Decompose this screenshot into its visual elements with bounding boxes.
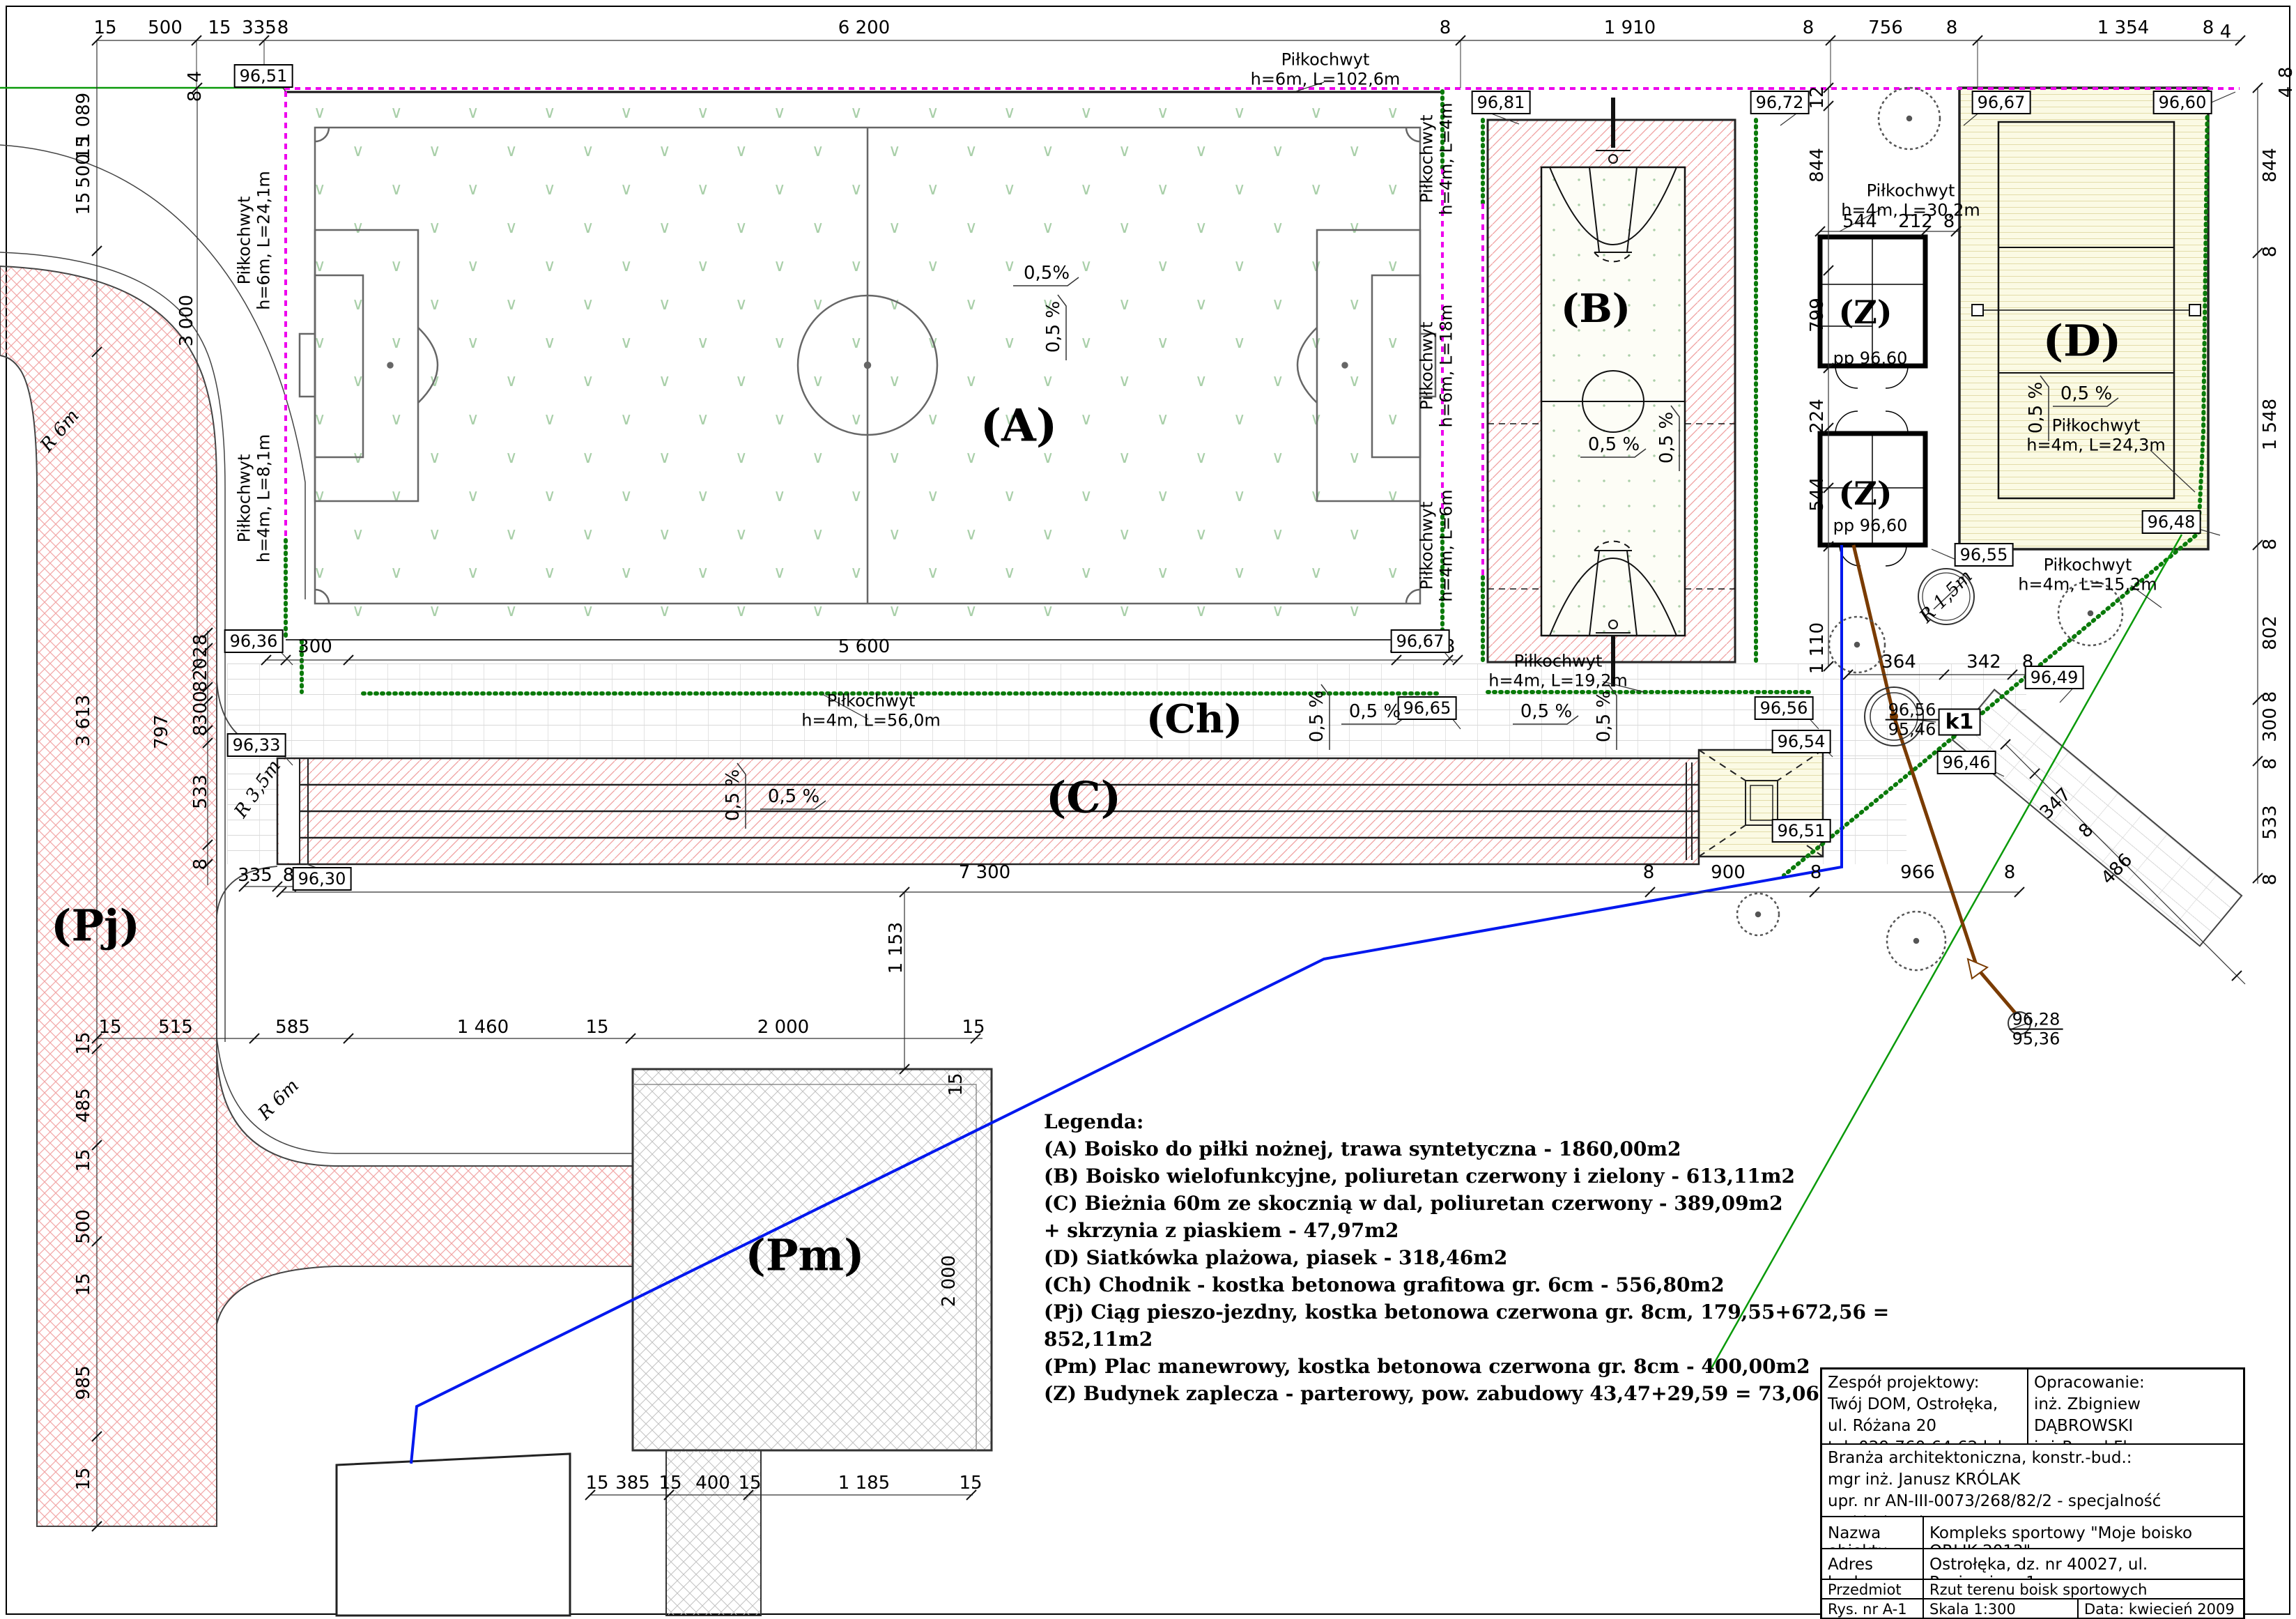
dimension-label: 1 153 [886,922,907,974]
dimension-label: 8 [2260,691,2281,703]
area-label: (D) [2043,316,2121,367]
branch-info: Branża architektoniczna, konstr.-bud.: m… [1822,1445,2243,1516]
dimension-label: 15 [959,1473,982,1494]
dimension-label: 342 [1966,652,2001,673]
dimension-label: 15 [658,1473,681,1494]
dimension-label: 8 [1803,17,1815,38]
dimension-label: 797 [151,714,172,749]
subject-label: Przedmiot rys.: [1822,1580,1924,1598]
fence-label: Piłkochwyt h=6m, L=102,6m [1251,50,1401,89]
legend-item: (B) Boisko wielofunkcyjne, poliuretan cz… [1044,1163,1915,1190]
legend-heading: Legenda: [1044,1108,1915,1135]
dimension-label: 15 [73,1031,94,1054]
elevation-marker: 96,67 [1972,91,2031,114]
legend-items: (A) Boisko do piłki nożnej, trawa syntet… [1044,1135,1915,1407]
elevation-marker: 96,56 [1755,696,1814,720]
legend-item: (D) Siatkówka plażowa, piasek - 318,46m2 [1044,1244,1915,1271]
elevation-marker: 96,48 [2142,510,2201,534]
dimension-label: 533 [2260,805,2281,840]
dimension-label: 2 000 [939,1255,960,1307]
dimension-label: 756 [1868,17,1903,38]
dimension-label: 8 [2260,758,2281,770]
dimension-label: 385 [615,1473,650,1494]
dimension-label: 15 [208,17,231,38]
elevation-marker: 96,54 [1772,730,1831,753]
slope-label: 0,5% [1024,263,1070,284]
dimension-label: 799 [1807,298,1828,332]
dimension-label: 12 [1807,86,1828,109]
slope-label: 0,5 % [723,769,743,821]
spot-elevation: 96,5695,46 [1886,701,1939,739]
dimension-label: 3 000 [176,295,197,346]
dimension-label: 8 [190,725,211,737]
area-label: (Z) [1838,475,1892,512]
elevation-marker: 96,51 [234,64,293,88]
elevation-marker: 96,51 [1772,819,1831,843]
leader-lines [277,82,2235,1029]
well-k1-label: k1 [1939,709,1981,736]
dimension-label: 15 [73,1149,94,1172]
legend-item: (A) Boisko do piłki nożnej, trawa syntet… [1044,1135,1915,1163]
south-building [337,1454,570,1616]
dimension-label: 7 300 [959,862,1010,883]
spot-elevation: 96,2895,36 [2010,1011,2063,1049]
dimension-label: 8 [190,634,211,646]
dimension-label: 1 110 [1807,622,1828,674]
fence-label: Piłkochwyt h=4m, L=8,1m [235,434,273,562]
dimension-label: 1 354 [2097,17,2149,38]
court-b-apron [1488,120,1735,662]
dimension-label: 15 [73,1273,94,1296]
area-label: (Pm) [746,1230,865,1281]
object-name-label: Nazwa obiektu: [1822,1517,1924,1548]
drawing-date: Data: kwiecień 2009 [2079,1599,2243,1618]
elevation-marker: 96,60 [2153,91,2212,114]
dimension-label: 4 [185,71,206,83]
area-label: (Z) [1838,293,1892,331]
floor-level-label: pp 96,60 [1833,516,1908,535]
dimension-label: 8 [2276,67,2296,79]
dimension-label: 533 [190,774,211,809]
dimension-label: 15 [73,192,94,215]
slope-label: 0,5 % [1349,701,1401,722]
legend-item: (Ch) Chodnik - kostka betonowa grafitowa… [1044,1271,1915,1298]
slope-label: 0,5 % [1588,434,1640,455]
fence-label: Piłkochwyt h=4m, L=4m [1417,102,1456,215]
elevation-marker: 96,49 [2025,666,2084,689]
dimension-label: 900 [1711,862,1746,883]
authors: Opracowanie: inż. Zbigniew DĄBROWSKI inż… [2028,1369,2243,1443]
legend: Legenda: (A) Boisko do piłki nożnej, tra… [1044,1108,1915,1407]
dimension-label: 224 [1807,399,1828,433]
slope-label: 0,5 % [768,786,819,807]
elevation-marker: 96,72 [1750,91,1810,114]
dimension-label: 8 [1643,862,1655,883]
subject-value: Rzut terenu boisk sportowych [1924,1580,2243,1598]
elevation-marker: 96,46 [1937,751,1996,774]
dimension-label: 300 [190,691,211,726]
legend-item: (Pj) Ciąg pieszo-jezdny, kostka betonowa… [1044,1298,1915,1353]
elevation-marker: 96,67 [1391,629,1450,653]
dimension-label: 8 [1810,862,1822,883]
slope-label: 0,5 % [1043,301,1064,353]
dimension-label: 844 [1807,148,1828,183]
football-pitch-markings [300,128,1435,604]
dimension-label: 400 [695,1473,730,1494]
fence-label: Piłkochwyt h=6m, L=24,1m [235,171,273,310]
dimension-label: 802 [2260,615,2281,650]
legend-item: + skrzynia z piaskiem - 47,97m2 [1044,1217,1915,1244]
site-plan-sheet: ∨∨∨∨∨∨∨∨∨∨∨∨∨∨∨∨∨∨∨∨∨∨∨∨∨∨∨∨∨∨∨∨∨∨∨∨∨∨∨∨… [0,0,2296,1619]
fence-label: Piłkochwyt h=4m, L=19,2m [1488,652,1628,690]
fence-label: Piłkochwyt h=4m, L=15,2m [2018,555,2157,594]
dimension-label: 1 185 [838,1473,890,1494]
dimension-label: 2 000 [757,1017,809,1038]
elevation-marker: 96,65 [1398,696,1457,720]
elevation-marker: 96,33 [227,733,286,757]
dimension-label: 985 [73,1365,94,1400]
dimension-label: 15 [98,1017,121,1038]
slope-label: 0,5 % [2060,383,2112,404]
dimension-label: 8 [2260,874,2281,886]
dimension-label: 5 600 [838,636,890,657]
object-name-value: Kompleks sportowy "Moje boisko ORLIK 201… [1924,1517,2243,1548]
drawing-number: Rys. nr A-1 [1822,1599,1924,1618]
fence-label: Piłkochwyt h=4m, L=24,3m [2026,416,2166,454]
dimension-label: 8 [2260,539,2281,551]
dimension-label: 15 [738,1473,761,1494]
elevation-marker: 96,55 [1955,543,2014,567]
slope-label: 0,5 % [1656,412,1677,463]
dimension-label: 4 [2276,86,2296,98]
legend-item: (Z) Budynek zaplecza - parterowy, pow. z… [1044,1380,1915,1407]
dimension-label: 8 [2260,246,2281,258]
dimension-label: 300 [298,636,332,657]
dimension-label: 1 548 [2260,399,2281,450]
dimension-label: 202 [190,646,211,681]
dimension-label: 500 [73,153,94,188]
area-label: (C) [1046,772,1121,823]
floor-level-label: pp 96,60 [1833,348,1908,368]
dimension-label: 8 [2004,862,2016,883]
address-label: Adres budowy: [1822,1549,1924,1579]
fence-label: Piłkochwyt h=4m, L=6m [1417,489,1456,601]
dimension-label: 485 [73,1088,94,1123]
elevation-marker: 96,36 [224,629,284,653]
dimension-label: 500 [73,1209,94,1244]
dimension-label: 15 [585,1473,608,1494]
elevation-marker: 96,81 [1472,91,1531,114]
dimension-label: 8 [2203,17,2214,38]
dimension-label: 15 [962,1017,985,1038]
dimension-label: 8 [277,17,289,38]
legend-item: (C) Bieżnia 60m ze skocznią w dal, poliu… [1044,1190,1915,1217]
slope-label: 0,5 % [2026,382,2047,433]
title-block: Zespół projektowy: Twój DOM, Ostrołęka, … [1820,1367,2245,1619]
fence-label: Piłkochwyt h=4m, L=30,2m [1841,181,1980,220]
dimension-label: 4 [2220,22,2232,43]
dimension-label: 364 [1881,652,1916,673]
dimension-label: 15 [946,1073,966,1096]
slope-label: 0,5 % [1594,691,1615,742]
dimension-label: 8 [1440,17,1451,38]
dimension-label: 8 [185,91,206,102]
dimension-label: 515 [158,1017,193,1038]
dimension-label: 544 [1807,477,1828,512]
dimension-label: 335 [242,17,277,38]
design-team: Zespół projektowy: Twój DOM, Ostrołęka, … [1822,1369,2028,1443]
dimension-label: 844 [2260,148,2281,183]
dimension-label: 1 460 [457,1017,509,1038]
dimension-label: 15 [93,17,116,38]
dimension-label: 15 [585,1017,608,1038]
pj-path-area [0,266,217,1526]
dimension-label: 966 [1900,862,1935,883]
dimension-label: 15 [73,1467,94,1490]
dimension-label: 335 [238,865,272,886]
slope-label: 0,5 % [1520,701,1572,722]
dimension-label: 8 [190,859,211,870]
dimension-label: 300 [2260,707,2281,742]
fence-label: Piłkochwyt h=6m, L=18m [1417,305,1456,428]
address-value: Ostrołęka, dz. nr 40027, ul. Papiernicza… [1924,1549,2243,1579]
dimension-label: 3 613 [73,695,94,746]
slope-label: 0,5 % [1307,691,1327,742]
drawing-scale: Skala 1:300 [1924,1599,2079,1618]
area-label: (Ch) [1146,696,1242,742]
area-label: (Pj) [51,900,140,951]
dimension-label: 1 910 [1604,17,1656,38]
dimension-label: 6 200 [838,17,890,38]
legend-item: (Pm) Plac manewrowy, kostka betonowa cze… [1044,1353,1915,1380]
dimension-label: 500 [148,17,183,38]
dimension-label: 8 [1946,17,1958,38]
area-label: (A) [980,400,1057,452]
area-label: (B) [1561,286,1631,332]
dimension-label: 585 [275,1017,310,1038]
elevation-marker: 96,30 [293,867,352,891]
fence-label: Piłkochwyt h=4m, L=56,0m [801,691,941,730]
